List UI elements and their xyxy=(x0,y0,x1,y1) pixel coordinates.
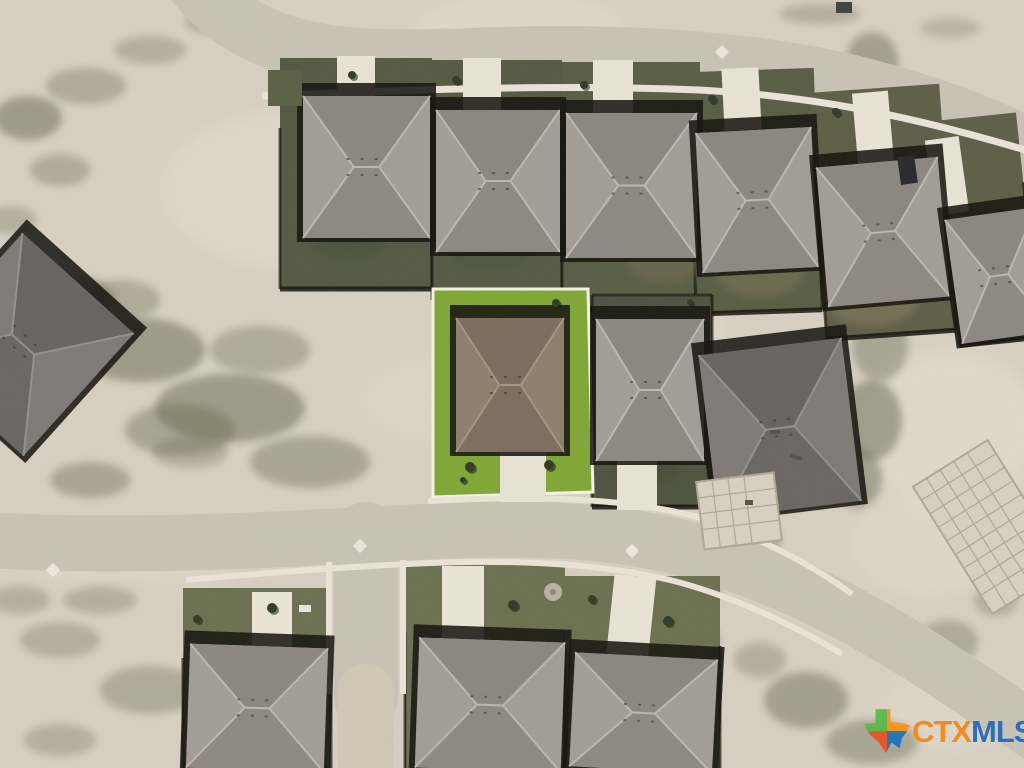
texas-logo-green xyxy=(864,708,887,731)
ctxmls-watermark: CTX MLS xyxy=(864,708,1024,754)
aerial-photo: CTX MLS xyxy=(0,0,1024,768)
ctxmls-texas-logo-icon xyxy=(864,708,910,754)
texas-logo-orange xyxy=(887,708,910,731)
watermark-text-mls: MLS xyxy=(971,716,1024,747)
photo-grain xyxy=(0,0,1024,768)
aerial-photo-canvas xyxy=(0,0,1024,768)
texas-logo-blue xyxy=(887,731,910,754)
watermark-text-ctx: CTX xyxy=(912,716,971,747)
texas-logo-red xyxy=(864,731,887,754)
